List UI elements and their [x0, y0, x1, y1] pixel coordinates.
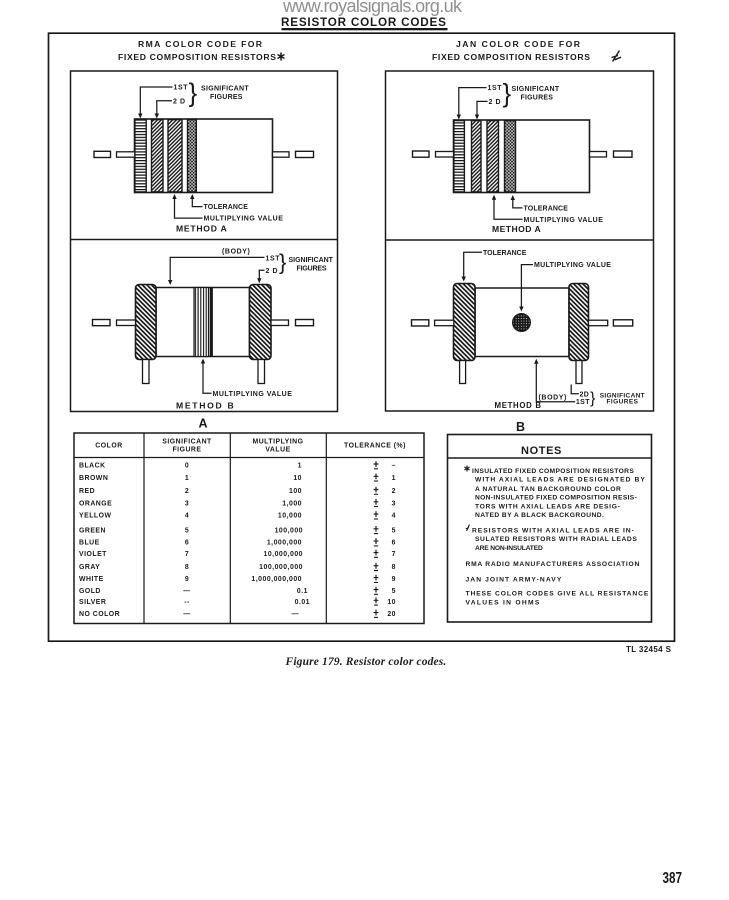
svg-text:7: 7 — [392, 551, 396, 558]
svg-text:www.royalsignals.org.uk: www.royalsignals.org.uk — [282, 0, 463, 16]
svg-text:THESE COLOR CODES GIVE ALL RES: THESE COLOR CODES GIVE ALL RESISTANCE — [466, 591, 649, 598]
svg-text:2: 2 — [392, 488, 396, 495]
svg-text:1,000,000,000: 1,000,000,000 — [251, 576, 302, 583]
svg-text:2 D: 2 D — [489, 99, 502, 106]
svg-text:FIGURES: FIGURES — [210, 94, 243, 101]
svg-text:NON-INSULATED FIXED COMPOSITIO: NON-INSULATED FIXED COMPOSITION RESIS- — [475, 495, 637, 502]
svg-text:100: 100 — [289, 488, 302, 495]
svg-text:Figure 179. Resistor color c: Figure 179. Resistor color codes. — [285, 656, 447, 668]
svg-text:--: -- — [184, 599, 190, 606]
svg-text:METHOD B: METHOD B — [176, 401, 235, 411]
svg-text:2D: 2D — [580, 392, 590, 399]
svg-text:10: 10 — [293, 475, 302, 482]
svg-text:TOLERANCE: TOLERANCE — [524, 206, 569, 213]
svg-text:MULTIPLYING VALUE: MULTIPLYING VALUE — [534, 262, 612, 269]
svg-text:6: 6 — [185, 540, 189, 547]
svg-text:VALUES IN OHMS: VALUES IN OHMS — [466, 600, 540, 607]
svg-text:RMA COLOR CODE FOR: RMA COLOR CODE FOR — [138, 39, 263, 49]
svg-text:METHOD A: METHOD A — [176, 224, 228, 234]
svg-text:9: 9 — [185, 576, 189, 583]
svg-text:(BODY): (BODY) — [539, 394, 568, 401]
svg-text:}: } — [189, 78, 198, 108]
svg-text:BLACK: BLACK — [79, 463, 106, 470]
svg-text:SILVER: SILVER — [79, 599, 106, 606]
svg-text:JAN COLOR CODE FOR: JAN COLOR CODE FOR — [456, 39, 581, 49]
svg-text:BLUE: BLUE — [79, 540, 100, 547]
svg-text:VALUE: VALUE — [265, 447, 290, 454]
svg-text:—: — — [183, 611, 190, 618]
svg-text:NATED BY A BLACK BACKGROUND.: NATED BY A BLACK BACKGROUND. — [475, 512, 604, 519]
svg-text:2 D: 2 D — [266, 268, 279, 275]
svg-text:1,000,000: 1,000,000 — [267, 540, 302, 547]
svg-text:3: 3 — [185, 500, 189, 507]
svg-text:0.1: 0.1 — [297, 588, 308, 595]
svg-text:METHOD B: METHOD B — [495, 401, 542, 410]
svg-text:100,000: 100,000 — [275, 527, 303, 534]
svg-text:FIGURES: FIGURES — [297, 266, 328, 273]
svg-text:5: 5 — [185, 527, 189, 534]
svg-text:ARE NON-INSULATED: ARE NON-INSULATED — [475, 545, 543, 552]
svg-text:FIXED COMPOSITION RESISTORS: FIXED COMPOSITION RESISTORS — [432, 52, 591, 62]
svg-text:20: 20 — [387, 611, 396, 618]
svg-text:8: 8 — [392, 564, 396, 571]
svg-text:6: 6 — [392, 540, 396, 547]
svg-text:NOTES: NOTES — [521, 445, 562, 457]
svg-text:METHOD A: METHOD A — [492, 224, 542, 234]
svg-text:1ST: 1ST — [174, 85, 189, 92]
svg-text:INSULATED FIXED COMPOSITION RE: INSULATED FIXED COMPOSITION RESISTORS — [472, 468, 634, 475]
svg-text:WHITE: WHITE — [79, 576, 104, 583]
svg-text:5: 5 — [392, 588, 396, 595]
svg-text:—: — — [183, 588, 190, 595]
svg-text:NO COLOR: NO COLOR — [79, 611, 120, 618]
svg-text:2: 2 — [185, 488, 189, 495]
svg-text:4: 4 — [185, 513, 189, 520]
svg-text:1: 1 — [185, 475, 189, 482]
svg-text:1ST: 1ST — [488, 85, 503, 92]
svg-text:GOLD: GOLD — [79, 588, 101, 595]
svg-text:VIOLET: VIOLET — [79, 551, 107, 558]
svg-text:FIGURE: FIGURE — [172, 447, 201, 454]
svg-text:RED: RED — [79, 488, 95, 495]
svg-text:0.01: 0.01 — [295, 599, 310, 606]
svg-text:TORS WITH AXIAL LEADS ARE DESI: TORS WITH AXIAL LEADS ARE DESIG- — [475, 503, 620, 510]
svg-text:10,000,000: 10,000,000 — [264, 551, 304, 558]
svg-text:}: } — [590, 390, 596, 407]
svg-text:10,000: 10,000 — [278, 513, 302, 520]
svg-text:1ST: 1ST — [576, 399, 590, 406]
svg-text:ORANGE: ORANGE — [79, 500, 112, 507]
svg-text:TL 32454 S: TL 32454 S — [626, 645, 672, 654]
svg-text:1,000: 1,000 — [282, 500, 302, 507]
svg-text:WITH AXIAL LEADS ARE DESIGNATE: WITH AXIAL LEADS ARE DESIGNATED BY — [475, 477, 645, 484]
svg-text:MULTIPLYING: MULTIPLYING — [252, 439, 303, 446]
svg-text:COLOR: COLOR — [95, 443, 122, 450]
svg-text:4: 4 — [392, 513, 396, 520]
svg-text:SULATED RESISTORS WITH RADIAL: SULATED RESISTORS WITH RADIAL LEADS — [475, 536, 637, 543]
svg-text:A: A — [198, 416, 207, 430]
svg-text:8: 8 — [185, 564, 189, 571]
svg-text:—: — — [292, 611, 299, 618]
svg-text:}: } — [279, 250, 286, 275]
svg-text:10: 10 — [387, 599, 396, 606]
svg-text:1: 1 — [392, 475, 396, 482]
svg-text:YELLOW: YELLOW — [79, 513, 111, 520]
svg-text:RMA RADIO MANUFACTURERS ASSOC: RMA RADIO MANUFACTURERS ASSOCIATION — [466, 561, 640, 568]
svg-text:B: B — [516, 420, 525, 434]
svg-text:7: 7 — [185, 551, 189, 558]
svg-text:MULTIPLYING VALUE: MULTIPLYING VALUE — [524, 217, 604, 224]
svg-text:GREEN: GREEN — [79, 527, 106, 534]
svg-text:SIGNIFICANT: SIGNIFICANT — [201, 86, 249, 93]
svg-text:}: } — [503, 78, 512, 108]
svg-text:A NATURAL TAN BACKGROUND COLOR: A NATURAL TAN BACKGROUND COLOR — [475, 486, 621, 493]
svg-text:0: 0 — [185, 463, 189, 470]
svg-text:1: 1 — [298, 463, 302, 470]
svg-text:JAN JOINT ARMY-NAVY: JAN JOINT ARMY-NAVY — [466, 577, 562, 584]
svg-text:TOLERANCE: TOLERANCE — [483, 250, 527, 257]
svg-text:FIGURES: FIGURES — [607, 399, 639, 406]
svg-text:SIGNIFICANT: SIGNIFICANT — [512, 86, 560, 93]
svg-text:FIXED COMPOSITION RESISTORS: FIXED COMPOSITION RESISTORS — [118, 52, 277, 62]
svg-text:100,000,000: 100,000,000 — [259, 564, 303, 571]
svg-text:9: 9 — [392, 576, 396, 583]
svg-text:(BODY): (BODY) — [222, 249, 251, 256]
svg-text:GRAY: GRAY — [79, 564, 100, 571]
svg-text:MULTIPLYING VALUE: MULTIPLYING VALUE — [204, 216, 284, 223]
svg-text:SIGNIFICANT: SIGNIFICANT — [162, 439, 212, 446]
svg-text:RESISTOR COLOR CODES: RESISTOR COLOR CODES — [281, 16, 447, 29]
svg-text:TOLERANCE (%): TOLERANCE (%) — [344, 443, 406, 450]
svg-text:MULTIPLYING VALUE: MULTIPLYING VALUE — [213, 391, 293, 398]
svg-text:3: 3 — [392, 500, 396, 507]
svg-text:TOLERANCE: TOLERANCE — [204, 204, 249, 211]
svg-text:BROWN: BROWN — [79, 475, 108, 482]
svg-text:5: 5 — [392, 527, 396, 534]
svg-text:–: – — [392, 463, 396, 470]
svg-text:SIGNIFICANT: SIGNIFICANT — [289, 257, 334, 264]
svg-text:2 D: 2 D — [173, 98, 186, 105]
svg-text:387: 387 — [663, 870, 683, 887]
svg-text:FIGURES: FIGURES — [521, 95, 554, 102]
svg-text:RESISTORS WITH AXIAL LEADS ARE: RESISTORS WITH AXIAL LEADS ARE IN- — [472, 527, 634, 534]
